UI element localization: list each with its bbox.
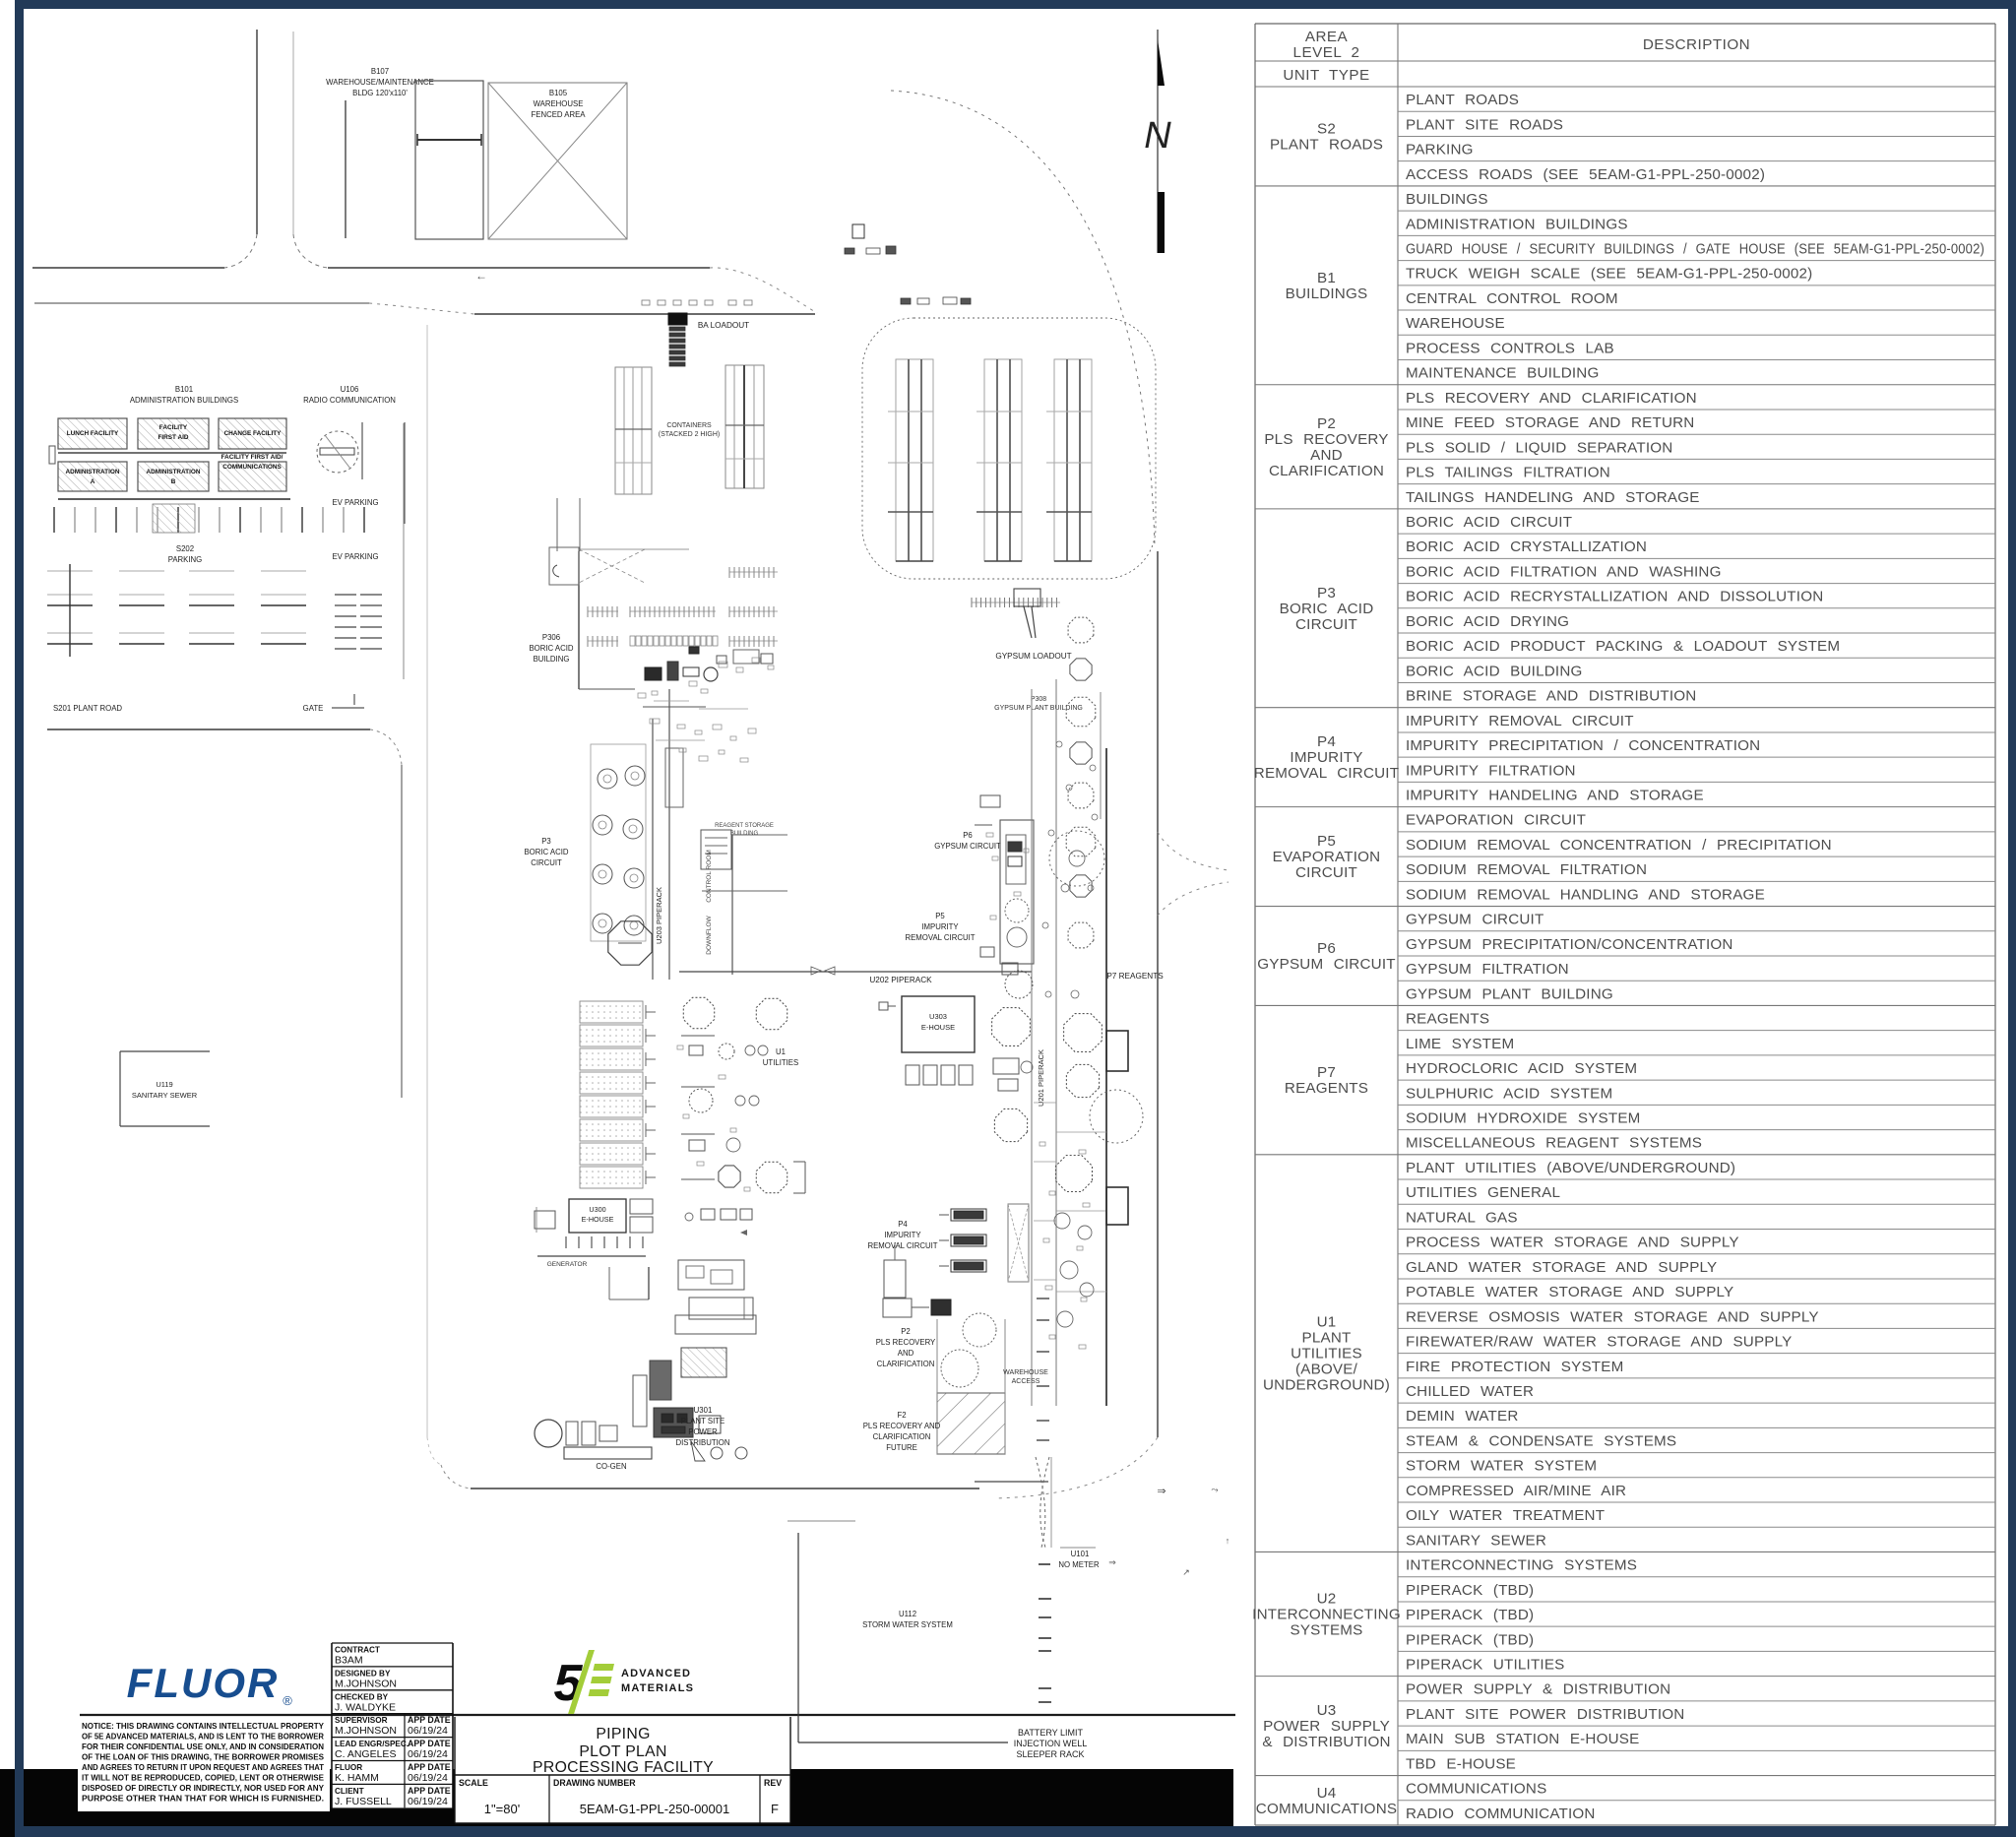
svg-text:UNDERGROUND): UNDERGROUND) <box>1263 1377 1390 1394</box>
svg-text:INTERCONNECTING SYSTEMS: INTERCONNECTING SYSTEMS <box>1406 1557 1637 1574</box>
svg-text:REAGENT STORAGE: REAGENT STORAGE <box>715 823 774 829</box>
svg-text:↑: ↑ <box>1226 1536 1230 1546</box>
svg-text:MISCELLANEOUS REAGENT SYSTEMS: MISCELLANEOUS REAGENT SYSTEMS <box>1406 1135 1702 1152</box>
svg-text:WAREHOUSE: WAREHOUSE <box>1406 315 1505 332</box>
svg-text:PURPOSE OTHER THAN THAT FOR WH: PURPOSE OTHER THAN THAT FOR WHICH IS FUR… <box>82 1794 324 1804</box>
svg-text:PLS RECOVERY: PLS RECOVERY <box>876 1338 936 1347</box>
svg-text:BATTERY LIMIT: BATTERY LIMIT <box>1018 1728 1084 1738</box>
svg-text:BORIC ACID: BORIC ACID <box>1280 601 1374 617</box>
svg-text:SULPHURIC ACID SYSTEM: SULPHURIC ACID SYSTEM <box>1406 1085 1612 1102</box>
svg-text:P3: P3 <box>1317 585 1336 602</box>
svg-text:PIPERACK (TBD): PIPERACK (TBD) <box>1406 1607 1534 1623</box>
svg-text:EV PARKING: EV PARKING <box>332 552 378 561</box>
svg-text:06/19/24: 06/19/24 <box>408 1748 448 1760</box>
svg-text:EVAPORATION CIRCUIT: EVAPORATION CIRCUIT <box>1406 812 1586 829</box>
svg-text:DISPOSED OF DIRECTLY OR INDIRE: DISPOSED OF DIRECTLY OR INDIRECTLY, NOR … <box>82 1783 324 1793</box>
svg-text:STORM WATER SYSTEM: STORM WATER SYSTEM <box>862 1620 953 1629</box>
svg-text:PLANT SITE ROADS: PLANT SITE ROADS <box>1406 116 1563 133</box>
svg-text:U119: U119 <box>156 1080 172 1089</box>
svg-text:FUTURE: FUTURE <box>886 1443 917 1452</box>
svg-text:HYDROCLORIC ACID SYSTEM: HYDROCLORIC ACID SYSTEM <box>1406 1060 1637 1077</box>
svg-text:←: ← <box>475 269 487 283</box>
svg-text:(ABOVE/: (ABOVE/ <box>1295 1362 1358 1378</box>
svg-text:PLANT SITE POWER DISTRIBUTION: PLANT SITE POWER DISTRIBUTION <box>1406 1706 1684 1723</box>
svg-text:GYPSUM LOADOUT: GYPSUM LOADOUT <box>995 652 1071 661</box>
svg-text:BA LOADOUT: BA LOADOUT <box>698 321 749 330</box>
svg-text:PLANT SITE: PLANT SITE <box>681 1417 725 1425</box>
svg-text:K. HAMM: K. HAMM <box>335 1772 379 1784</box>
svg-text:P5: P5 <box>935 912 945 920</box>
svg-text:REAGENTS: REAGENTS <box>1406 1011 1489 1028</box>
svg-text:TRUCK WEIGH SCALE (SEE 5EAM-G1: TRUCK WEIGH SCALE (SEE 5EAM-G1-PPL-250-0… <box>1406 266 1812 283</box>
svg-text:POTABLE WATER STORAGE AND SUPP: POTABLE WATER STORAGE AND SUPPLY <box>1406 1284 1733 1300</box>
svg-text:SYSTEMS: SYSTEMS <box>1291 1622 1363 1639</box>
svg-text:REMOVAL CIRCUIT: REMOVAL CIRCUIT <box>905 933 975 942</box>
svg-text:ACCESS: ACCESS <box>1012 1378 1040 1385</box>
svg-text:PLANT: PLANT <box>1302 1330 1352 1347</box>
svg-text:& DISTRIBUTION: & DISTRIBUTION <box>1262 1734 1390 1750</box>
svg-text:B3AM: B3AM <box>335 1655 363 1667</box>
svg-text:BLDG 120'x110': BLDG 120'x110' <box>352 89 408 97</box>
svg-text:06/19/24: 06/19/24 <box>408 1796 448 1807</box>
svg-text:CLARIFICATION: CLARIFICATION <box>877 1360 935 1368</box>
svg-text:U106: U106 <box>341 385 359 394</box>
svg-text:LUNCH FACILITY: LUNCH FACILITY <box>67 430 119 437</box>
svg-text:J. FUSSELL: J. FUSSELL <box>335 1796 392 1807</box>
svg-text:CONTROL ROOM: CONTROL ROOM <box>706 850 713 903</box>
svg-text:ACCESS ROADS (SEE 5EAM-G1-PPL-: ACCESS ROADS (SEE 5EAM-G1-PPL-250-0002) <box>1406 166 1765 183</box>
svg-text:UTILITIES: UTILITIES <box>763 1058 798 1067</box>
svg-text:IMPURITY: IMPURITY <box>921 922 959 931</box>
svg-text:CIRCUIT: CIRCUIT <box>1295 616 1357 633</box>
svg-text:BORIC ACID BUILDING: BORIC ACID BUILDING <box>1406 663 1583 679</box>
svg-text:IMPURITY: IMPURITY <box>884 1231 921 1239</box>
svg-text:POWER SUPPLY: POWER SUPPLY <box>1263 1718 1390 1735</box>
svg-text:B101: B101 <box>175 385 193 394</box>
svg-text:PLOT PLAN: PLOT PLAN <box>579 1743 666 1760</box>
svg-text:GYPSUM CIRCUIT: GYPSUM CIRCUIT <box>1406 912 1543 928</box>
svg-text:BUILDING: BUILDING <box>534 655 570 664</box>
svg-text:DOWNFLOW: DOWNFLOW <box>706 915 713 954</box>
svg-text:POWER: POWER <box>688 1427 718 1436</box>
svg-text:BORIC ACID: BORIC ACID <box>524 848 568 856</box>
svg-text:SCALE: SCALE <box>459 1778 488 1788</box>
svg-text:GYPSUM PLANT BUILDING: GYPSUM PLANT BUILDING <box>1406 985 1613 1002</box>
svg-text:BORIC ACID RECRYSTALLIZATION A: BORIC ACID RECRYSTALLIZATION AND DISSOLU… <box>1406 589 1823 605</box>
svg-text:FIREWATER/RAW WATER STORAGE AN: FIREWATER/RAW WATER STORAGE AND SUPPLY <box>1406 1334 1792 1351</box>
svg-text:REV: REV <box>764 1778 782 1788</box>
svg-text:CONTRACT: CONTRACT <box>335 1646 380 1655</box>
svg-text:WAREHOUSE/MAINTENANCE: WAREHOUSE/MAINTENANCE <box>326 78 434 87</box>
svg-text:APP DATE: APP DATE <box>408 1739 451 1748</box>
svg-text:↗: ↗ <box>1182 1567 1190 1577</box>
svg-text:ADMINISTRATION: ADMINISTRATION <box>147 469 201 475</box>
svg-text:PROCESS WATER STORAGE AND SUPP: PROCESS WATER STORAGE AND SUPPLY <box>1406 1235 1739 1251</box>
svg-text:MAIN SUB STATION E-HOUSE: MAIN SUB STATION E-HOUSE <box>1406 1731 1639 1747</box>
svg-text:⇒: ⇒ <box>1108 1557 1116 1567</box>
svg-text:PLS RECOVERY AND: PLS RECOVERY AND <box>863 1422 941 1430</box>
svg-text:P6: P6 <box>963 831 973 840</box>
svg-text:U101: U101 <box>1071 1550 1090 1558</box>
svg-text:OF 5E ADVANCED MATERIALS, AND: OF 5E ADVANCED MATERIALS, AND IS LENT TO… <box>82 1732 324 1742</box>
svg-text:IMPURITY HANDELING AND STORAGE: IMPURITY HANDELING AND STORAGE <box>1406 788 1704 804</box>
svg-text:P6: P6 <box>1317 940 1336 957</box>
svg-text:FLUOR: FLUOR <box>335 1763 362 1772</box>
svg-text:UNIT TYPE: UNIT TYPE <box>1283 67 1369 84</box>
svg-text:BORIC ACID: BORIC ACID <box>529 644 573 653</box>
svg-text:P2: P2 <box>1317 415 1336 432</box>
svg-text:BRINE STORAGE AND DISTRIBUTION: BRINE STORAGE AND DISTRIBUTION <box>1406 688 1696 705</box>
svg-text:REMOVAL CIRCUIT: REMOVAL CIRCUIT <box>1254 765 1399 782</box>
svg-text:GLAND WATER STORAGE AND SUPPLY: GLAND WATER STORAGE AND SUPPLY <box>1406 1259 1717 1276</box>
svg-text:F2: F2 <box>897 1411 906 1420</box>
svg-text:PLS RECOVERY: PLS RECOVERY <box>1264 431 1388 448</box>
svg-text:CHECKED BY: CHECKED BY <box>335 1692 389 1701</box>
svg-text:AND: AND <box>1310 447 1343 464</box>
svg-text:B1: B1 <box>1317 270 1336 286</box>
svg-text:SODIUM REMOVAL CONCENTRATION /: SODIUM REMOVAL CONCENTRATION / PRECIPITA… <box>1406 837 1832 854</box>
svg-text:STEAM & CONDENSATE SYSTEMS: STEAM & CONDENSATE SYSTEMS <box>1406 1432 1676 1449</box>
svg-text:®: ® <box>283 1693 292 1708</box>
svg-text:BUILDINGS: BUILDINGS <box>1406 191 1488 208</box>
svg-text:RADIO COMMUNICATION: RADIO COMMUNICATION <box>303 396 396 405</box>
svg-text:5EAM-G1-PPL-250-00001: 5EAM-G1-PPL-250-00001 <box>580 1802 729 1816</box>
svg-text:GYPSUM PLANT BUILDING: GYPSUM PLANT BUILDING <box>994 705 1083 712</box>
svg-text:C. ANGELES: C. ANGELES <box>335 1748 396 1760</box>
svg-text:OF THE LOAN OF THIS DRAWING, T: OF THE LOAN OF THIS DRAWING, THE BORROWE… <box>82 1752 324 1762</box>
svg-text:EVAPORATION: EVAPORATION <box>1273 849 1381 865</box>
svg-text:IMPURITY FILTRATION: IMPURITY FILTRATION <box>1406 762 1576 779</box>
svg-text:TAILINGS HANDELING AND STORAGE: TAILINGS HANDELING AND STORAGE <box>1406 489 1700 506</box>
svg-text:COMMUNICATIONS: COMMUNICATIONS <box>1406 1781 1546 1798</box>
svg-text:A: A <box>91 478 95 485</box>
svg-text:RADIO COMMUNICATION: RADIO COMMUNICATION <box>1406 1805 1596 1822</box>
svg-text:PROCESS CONTROLS LAB: PROCESS CONTROLS LAB <box>1406 340 1614 356</box>
svg-text:P7 REAGENTS: P7 REAGENTS <box>1106 972 1164 981</box>
svg-text:WAREHOUSE: WAREHOUSE <box>534 99 584 108</box>
svg-text:FACILITY FIRST AID/: FACILITY FIRST AID/ <box>221 454 283 461</box>
svg-text:MINE FEED STORAGE AND RETURN: MINE FEED STORAGE AND RETURN <box>1406 414 1694 431</box>
svg-text:U301: U301 <box>694 1406 713 1415</box>
svg-text:P5: P5 <box>1317 833 1336 850</box>
svg-text:U3: U3 <box>1317 1702 1337 1719</box>
svg-text:SLEEPER RACK: SLEEPER RACK <box>1016 1749 1084 1759</box>
svg-text:PIPING: PIPING <box>596 1726 650 1742</box>
svg-text:CLIENT: CLIENT <box>335 1787 364 1796</box>
svg-text:M.JOHNSON: M.JOHNSON <box>335 1725 397 1737</box>
svg-text:06/19/24: 06/19/24 <box>408 1772 448 1784</box>
svg-text:B107: B107 <box>371 67 389 76</box>
svg-text:ADMINISTRATION BUILDINGS: ADMINISTRATION BUILDINGS <box>130 396 238 405</box>
svg-text:N: N <box>1144 115 1171 157</box>
svg-text:COMMUNICATIONS: COMMUNICATIONS <box>1256 1801 1397 1817</box>
svg-text:BORIC ACID CRYSTALLIZATION: BORIC ACID CRYSTALLIZATION <box>1406 538 1647 555</box>
svg-text:WAREHOUSE: WAREHOUSE <box>1003 1369 1048 1376</box>
svg-text:(STACKED 2 HIGH): (STACKED 2 HIGH) <box>659 431 721 438</box>
svg-text:U4: U4 <box>1317 1785 1337 1802</box>
svg-text:IMPURITY PRECIPITATION / CONCE: IMPURITY PRECIPITATION / CONCENTRATION <box>1406 737 1760 754</box>
svg-text:UTILITIES: UTILITIES <box>1291 1346 1362 1362</box>
svg-text:APP DATE: APP DATE <box>408 1762 451 1772</box>
svg-text:FIRST AID: FIRST AID <box>157 434 188 441</box>
svg-text:CLARIFICATION: CLARIFICATION <box>873 1432 931 1441</box>
svg-text:IT WILL NOT BE REPRODUCED, COP: IT WILL NOT BE REPRODUCED, COPIED, LENT … <box>82 1773 324 1783</box>
svg-text:FACILITY: FACILITY <box>159 424 188 431</box>
svg-text:OILY WATER TREATMENT: OILY WATER TREATMENT <box>1406 1507 1605 1524</box>
svg-text:S2: S2 <box>1317 120 1336 137</box>
svg-text:⤳: ⤳ <box>1211 1485 1218 1494</box>
svg-text:MAINTENANCE BUILDING: MAINTENANCE BUILDING <box>1406 365 1600 382</box>
svg-text:AREA: AREA <box>1305 29 1349 45</box>
svg-text:SANITARY SEWER: SANITARY SEWER <box>1406 1532 1546 1549</box>
svg-text:COMMUNICATIONS: COMMUNICATIONS <box>222 464 282 471</box>
svg-text:UTILITIES GENERAL: UTILITIES GENERAL <box>1406 1184 1560 1201</box>
svg-text:LIME SYSTEM: LIME SYSTEM <box>1406 1036 1514 1052</box>
svg-text:GYPSUM FILTRATION: GYPSUM FILTRATION <box>1406 961 1569 978</box>
svg-text:M.JOHNSON: M.JOHNSON <box>335 1678 397 1689</box>
svg-text:TBD E-HOUSE: TBD E-HOUSE <box>1406 1755 1516 1772</box>
svg-text:STORM WATER SYSTEM: STORM WATER SYSTEM <box>1406 1458 1597 1475</box>
svg-text:U201 PIPERACK: U201 PIPERACK <box>1037 1049 1045 1107</box>
svg-text:CO-GEN: CO-GEN <box>596 1462 626 1471</box>
svg-text:DISTRIBUTION: DISTRIBUTION <box>675 1438 729 1447</box>
svg-text:P4: P4 <box>898 1220 908 1229</box>
svg-text:FIRE PROTECTION SYSTEM: FIRE PROTECTION SYSTEM <box>1406 1359 1623 1375</box>
svg-text:FENCED AREA: FENCED AREA <box>531 110 586 119</box>
svg-text:ADMINISTRATION BUILDINGS: ADMINISTRATION BUILDINGS <box>1406 216 1628 232</box>
svg-text:BORIC ACID CIRCUIT: BORIC ACID CIRCUIT <box>1406 514 1572 531</box>
svg-text:P306: P306 <box>542 633 560 642</box>
svg-text:NO METER: NO METER <box>1058 1560 1100 1569</box>
svg-text:1"=80': 1"=80' <box>484 1802 520 1816</box>
svg-text:SODIUM REMOVAL HANDLING AND ST: SODIUM REMOVAL HANDLING AND STORAGE <box>1406 886 1765 903</box>
svg-text:PLS SOLID / LIQUID SEPARATION: PLS SOLID / LIQUID SEPARATION <box>1406 439 1672 456</box>
svg-text:CENTRAL CONTROL ROOM: CENTRAL CONTROL ROOM <box>1406 290 1618 307</box>
svg-text:DEMIN WATER: DEMIN WATER <box>1406 1408 1519 1425</box>
svg-text:PIPERACK UTILITIES: PIPERACK UTILITIES <box>1406 1657 1565 1674</box>
svg-text:ADVANCED: ADVANCED <box>621 1668 691 1679</box>
svg-text:CONTAINERS: CONTAINERS <box>666 422 712 429</box>
svg-text:⇒: ⇒ <box>1157 1486 1165 1497</box>
svg-text:FOR THEIR CONFIDENTIAL USE ONL: FOR THEIR CONFIDENTIAL USE ONLY, AND IN … <box>82 1742 324 1751</box>
svg-text:REVERSE OSMOSIS WATER STORAGE: REVERSE OSMOSIS WATER STORAGE AND SUPPLY <box>1406 1308 1819 1325</box>
svg-text:J. WALDYKE: J. WALDYKE <box>335 1701 396 1713</box>
svg-text:U1: U1 <box>776 1047 786 1056</box>
svg-text:AND: AND <box>898 1349 914 1358</box>
svg-text:GYPSUM CIRCUIT: GYPSUM CIRCUIT <box>1257 956 1395 973</box>
svg-text:U203 PIPERACK: U203 PIPERACK <box>655 887 663 944</box>
svg-text:POWER SUPPLY & DISTRIBUTION: POWER SUPPLY & DISTRIBUTION <box>1406 1681 1670 1698</box>
svg-text:PLANT UTILITIES (ABOVE/UNDERGR: PLANT UTILITIES (ABOVE/UNDERGROUND) <box>1406 1160 1735 1176</box>
svg-text:PIPERACK (TBD): PIPERACK (TBD) <box>1406 1582 1534 1599</box>
svg-text:NOTICE: THIS DRAWING CONTAINS: NOTICE: THIS DRAWING CONTAINS INTELLECTU… <box>82 1721 324 1731</box>
svg-text:REAGENTS: REAGENTS <box>1285 1080 1368 1097</box>
svg-text:CIRCUIT: CIRCUIT <box>1295 864 1357 881</box>
svg-text:B: B <box>171 478 176 485</box>
svg-text:S201 PLANT ROAD: S201 PLANT ROAD <box>53 704 122 713</box>
svg-text:IMPURITY: IMPURITY <box>1290 749 1362 766</box>
svg-text:MATERIALS: MATERIALS <box>621 1682 694 1694</box>
svg-text:S202: S202 <box>176 544 194 553</box>
svg-text:GATE: GATE <box>303 704 324 713</box>
svg-text:AND AGREES TO RETURN IT UPON R: AND AGREES TO RETURN IT UPON REQUEST AND… <box>82 1762 325 1772</box>
svg-text:PIPERACK (TBD): PIPERACK (TBD) <box>1406 1631 1534 1648</box>
svg-text:P308: P308 <box>1031 696 1046 703</box>
svg-text:CIRCUIT: CIRCUIT <box>531 858 562 867</box>
svg-text:SODIUM REMOVAL FILTRATION: SODIUM REMOVAL FILTRATION <box>1406 861 1647 878</box>
svg-text:BORIC ACID DRYING: BORIC ACID DRYING <box>1406 613 1569 630</box>
svg-text:APP DATE: APP DATE <box>408 1786 451 1796</box>
svg-text:BUILDINGS: BUILDINGS <box>1286 285 1368 302</box>
svg-text:INTERCONNECTING: INTERCONNECTING <box>1252 1607 1401 1623</box>
svg-text:PLANT ROADS: PLANT ROADS <box>1270 136 1383 153</box>
svg-text:DRAWING NUMBER: DRAWING NUMBER <box>553 1778 636 1788</box>
svg-text:DESCRIPTION: DESCRIPTION <box>1643 36 1750 53</box>
svg-text:F: F <box>771 1802 779 1816</box>
svg-text:P3: P3 <box>541 837 551 846</box>
svg-text:E-HOUSE: E-HOUSE <box>582 1215 614 1224</box>
svg-text:P7: P7 <box>1317 1064 1336 1081</box>
svg-text:PROCESSING FACILITY: PROCESSING FACILITY <box>533 1759 714 1776</box>
svg-text:P4: P4 <box>1317 733 1336 750</box>
svg-text:CHANGE FACILITY: CHANGE FACILITY <box>224 430 283 437</box>
svg-text:LEAD ENGR/SPEC.: LEAD ENGR/SPEC. <box>335 1740 409 1748</box>
svg-text:GUARD HOUSE / SECURITY BUILDIN: GUARD HOUSE / SECURITY BUILDINGS / GATE … <box>1406 240 1984 257</box>
svg-text:E-HOUSE: E-HOUSE <box>921 1023 955 1032</box>
svg-text:U2: U2 <box>1317 1591 1337 1608</box>
svg-text:LEVEL 2: LEVEL 2 <box>1293 44 1360 61</box>
svg-text:U112: U112 <box>899 1610 916 1618</box>
svg-text:PLS RECOVERY AND CLARIFICATION: PLS RECOVERY AND CLARIFICATION <box>1406 390 1697 407</box>
svg-text:CLARIFICATION: CLARIFICATION <box>1269 463 1384 479</box>
svg-text:06/19/24: 06/19/24 <box>408 1725 448 1737</box>
svg-text:SANITARY SEWER: SANITARY SEWER <box>132 1091 198 1100</box>
svg-text:U1: U1 <box>1317 1314 1337 1331</box>
svg-text:APP DATE: APP DATE <box>408 1715 451 1725</box>
svg-text:COMPRESSED AIR/MINE AIR: COMPRESSED AIR/MINE AIR <box>1406 1483 1626 1499</box>
svg-text:SUPERVISOR: SUPERVISOR <box>335 1716 388 1725</box>
svg-text:CHILLED WATER: CHILLED WATER <box>1406 1383 1534 1400</box>
svg-text:SODIUM HYDROXIDE SYSTEM: SODIUM HYDROXIDE SYSTEM <box>1406 1109 1641 1126</box>
svg-text:B105: B105 <box>549 89 568 97</box>
svg-text:REMOVAL CIRCUIT: REMOVAL CIRCUIT <box>867 1241 937 1250</box>
svg-text:PARKING: PARKING <box>168 555 203 564</box>
svg-text:U303: U303 <box>929 1012 947 1021</box>
svg-text:U300: U300 <box>589 1205 605 1214</box>
svg-text:FLUOR: FLUOR <box>127 1660 280 1706</box>
svg-text:DESIGNED BY: DESIGNED BY <box>335 1669 391 1678</box>
svg-text:BUILDING: BUILDING <box>730 831 759 837</box>
svg-text:ADMINISTRATION: ADMINISTRATION <box>66 469 120 475</box>
svg-text:BORIC ACID FILTRATION AND WASH: BORIC ACID FILTRATION AND WASHING <box>1406 563 1722 580</box>
svg-text:GYPSUM PRECIPITATION/CONCENTRA: GYPSUM PRECIPITATION/CONCENTRATION <box>1406 936 1733 953</box>
svg-text:GENERATOR: GENERATOR <box>547 1261 588 1268</box>
svg-text:EV PARKING: EV PARKING <box>332 498 378 507</box>
svg-text:PLS TAILINGS FILTRATION: PLS TAILINGS FILTRATION <box>1406 465 1610 481</box>
svg-text:PARKING: PARKING <box>1406 142 1474 158</box>
svg-text:BORIC ACID PRODUCT PACKING & L: BORIC ACID PRODUCT PACKING & LOADOUT SYS… <box>1406 638 1840 655</box>
svg-text:U202 PIPERACK: U202 PIPERACK <box>869 976 932 984</box>
svg-text:INJECTION WELL: INJECTION WELL <box>1014 1739 1088 1748</box>
svg-text:GYPSUM CIRCUIT: GYPSUM CIRCUIT <box>934 842 1001 851</box>
svg-text:NATURAL GAS: NATURAL GAS <box>1406 1209 1518 1226</box>
svg-text:PLANT ROADS: PLANT ROADS <box>1406 92 1519 108</box>
svg-text:P2: P2 <box>901 1327 911 1336</box>
svg-text:IMPURITY REMOVAL CIRCUIT: IMPURITY REMOVAL CIRCUIT <box>1406 713 1634 729</box>
